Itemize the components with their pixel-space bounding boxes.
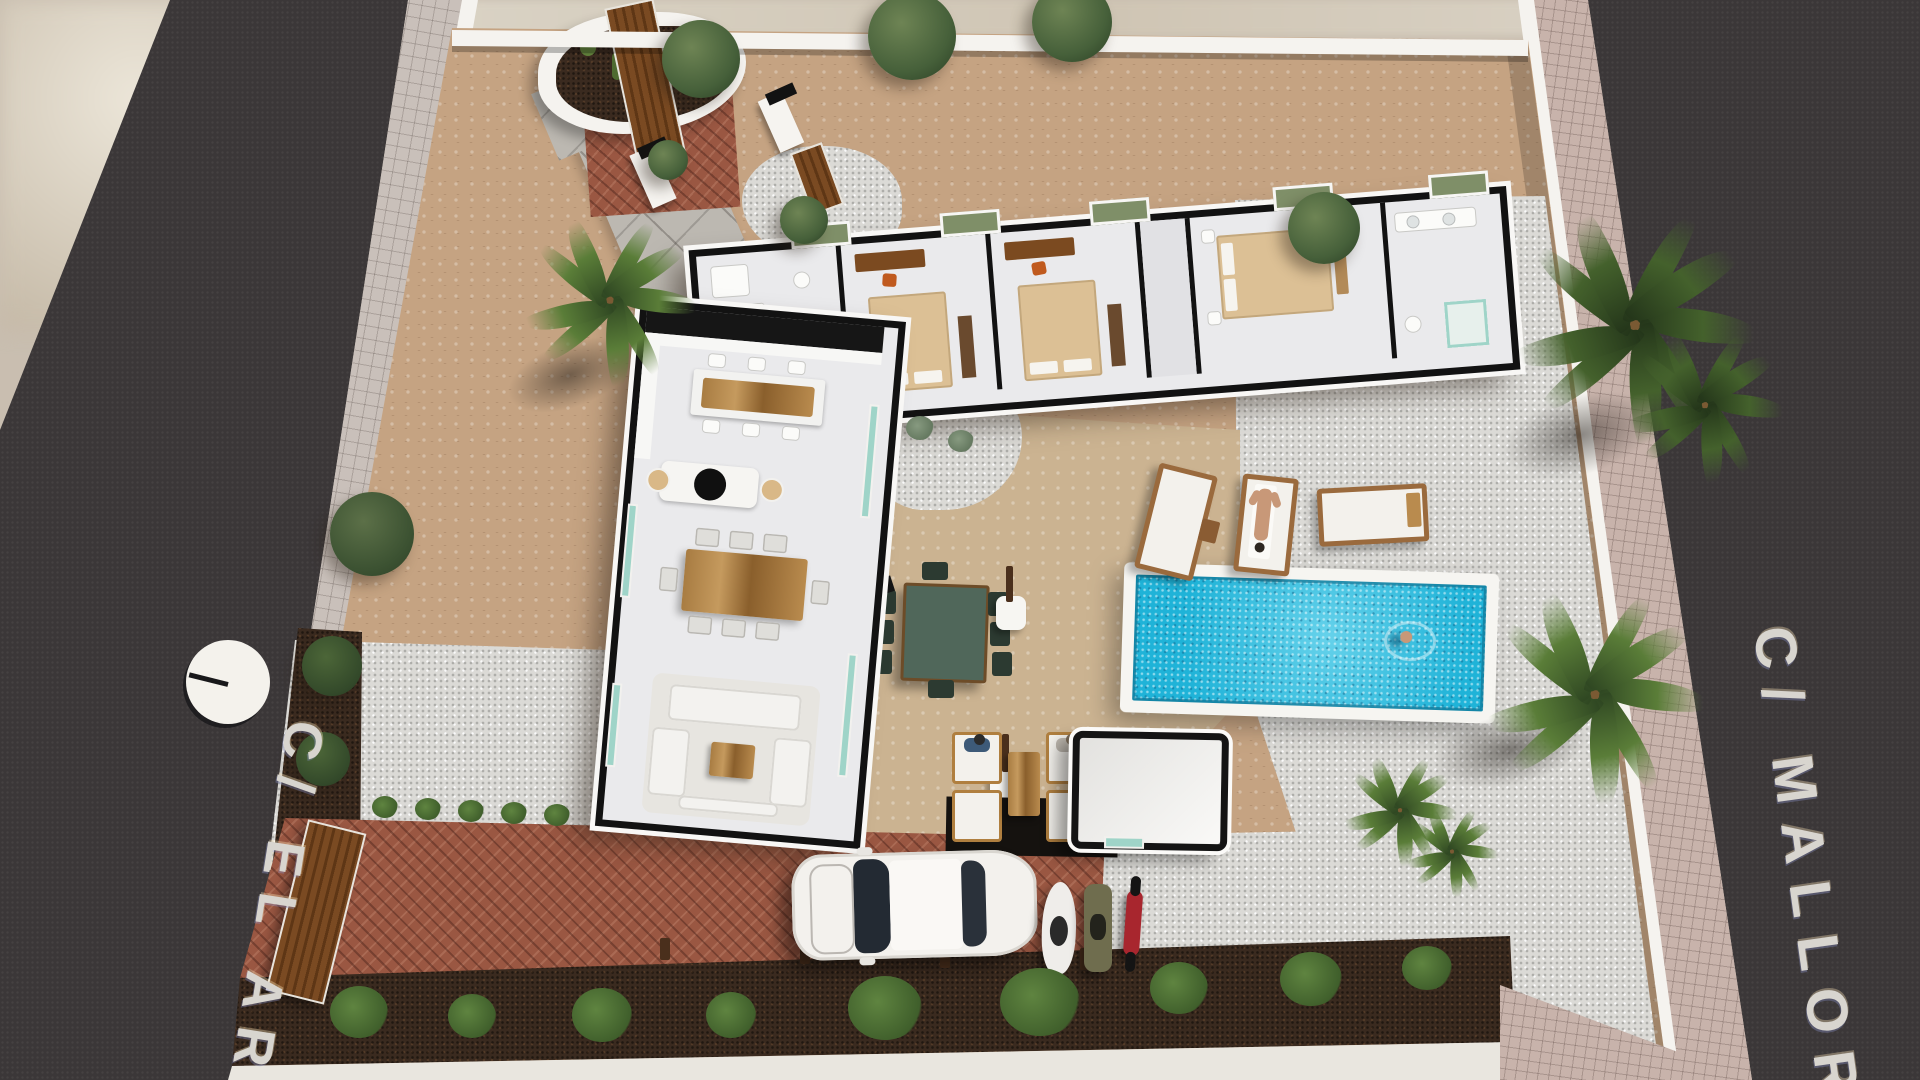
motorbike-wheel-front bbox=[1130, 876, 1141, 897]
sun-lounger-3 bbox=[1317, 483, 1430, 547]
drive-post-1 bbox=[660, 938, 670, 960]
ensuite-shower bbox=[1444, 299, 1489, 348]
indoor-chair-t3 bbox=[762, 533, 787, 553]
indoor-chair-b2 bbox=[721, 618, 746, 638]
clock-disc-icon bbox=[186, 640, 270, 724]
glass-door-east-1 bbox=[862, 406, 878, 516]
hedge-bush-3 bbox=[458, 800, 484, 822]
sun-lounger-2 bbox=[1233, 473, 1299, 576]
border-shrub-7 bbox=[1150, 962, 1208, 1014]
bedroom2-pillow-a bbox=[1029, 361, 1058, 375]
pool-water bbox=[1132, 575, 1487, 712]
white-car bbox=[791, 849, 1039, 961]
indoor-chair-t1 bbox=[695, 528, 720, 548]
ensuite-toilet bbox=[1405, 316, 1421, 332]
car-windshield bbox=[853, 859, 891, 954]
motorbike-wheel-rear bbox=[1125, 952, 1136, 973]
swimming-pool bbox=[1120, 562, 1500, 724]
car-rear-window bbox=[961, 860, 987, 947]
car-hood-seam bbox=[809, 864, 855, 955]
olive-tree-north-1 bbox=[662, 20, 740, 98]
bedroom1-desk bbox=[854, 249, 925, 272]
sofa-west bbox=[647, 726, 691, 797]
master-pillow-a bbox=[1221, 243, 1235, 276]
pool-house bbox=[1071, 731, 1229, 852]
palm-tree-left bbox=[528, 218, 692, 382]
lounger-3-headrest bbox=[1406, 493, 1422, 528]
glass-door-west-1 bbox=[622, 506, 636, 596]
bar-stool-6 bbox=[782, 427, 799, 440]
bar-stool-5 bbox=[743, 423, 760, 436]
dining-chair-bottom bbox=[928, 680, 954, 698]
lounge-coffee-table bbox=[1008, 752, 1040, 816]
wall-partition-5 bbox=[1380, 203, 1397, 359]
hedge-bush-2 bbox=[415, 798, 441, 820]
side-stool-b bbox=[761, 479, 783, 501]
indoor-chair-t2 bbox=[729, 530, 754, 550]
car-mirror-bottom bbox=[859, 957, 875, 965]
tree-left-wall bbox=[330, 492, 414, 576]
bar-stool-2 bbox=[748, 357, 765, 370]
dining-table-indoor bbox=[681, 549, 808, 621]
border-shrub-5 bbox=[848, 976, 922, 1040]
dining-chair-r3 bbox=[992, 652, 1012, 676]
pool-house-roof-shade bbox=[1078, 738, 1222, 844]
master-nightstand-a bbox=[1202, 230, 1215, 243]
bathroom-shower-1 bbox=[711, 265, 749, 298]
border-shrub-8 bbox=[1280, 952, 1342, 1006]
lightwell-strip-5 bbox=[1428, 170, 1490, 199]
bedroom2-wardrobe bbox=[1107, 304, 1126, 367]
indoor-chair-b1 bbox=[687, 615, 712, 635]
border-shrub-9 bbox=[1402, 946, 1452, 990]
indoor-chair-left bbox=[659, 567, 679, 592]
sofa-east bbox=[768, 737, 812, 808]
indoor-chair-right bbox=[810, 580, 830, 605]
olive-tree-courtyard bbox=[780, 196, 828, 244]
aerial-render-canvas: C/ EL AR C/ MALLOR bbox=[0, 0, 1920, 1080]
bedroom1-pillow-b bbox=[914, 370, 943, 384]
border-shrub-3 bbox=[572, 988, 632, 1042]
living-coffee-table bbox=[709, 742, 756, 780]
glass-door-east-2 bbox=[839, 655, 855, 775]
lounge-armchair-sw bbox=[952, 790, 1002, 842]
glass-door-west-2 bbox=[607, 685, 620, 765]
pool-house-window bbox=[1106, 838, 1142, 847]
clock-hand bbox=[189, 672, 229, 687]
palm-tree-gravel-2 bbox=[1408, 808, 1496, 896]
border-shrub-6 bbox=[1000, 968, 1080, 1036]
border-shrub-1 bbox=[330, 986, 388, 1038]
palm-tree-right-small bbox=[1630, 330, 1780, 480]
border-shrub-4 bbox=[706, 992, 756, 1038]
master-nightstand-b bbox=[1208, 312, 1221, 325]
bedroom2-chair bbox=[1031, 261, 1047, 276]
dining-chair-top bbox=[922, 562, 948, 580]
scooter-olive-seat bbox=[1090, 914, 1106, 940]
outdoor-dining-table bbox=[900, 583, 989, 684]
tree-right-gravel bbox=[1288, 192, 1360, 264]
hedge-bush-5 bbox=[544, 804, 570, 826]
hedge-bush-4 bbox=[501, 802, 527, 824]
indoor-chair-b3 bbox=[755, 621, 780, 641]
seated-person-1-head bbox=[974, 734, 985, 745]
bedroom2-desk bbox=[1004, 237, 1075, 260]
master-pillow-b bbox=[1223, 279, 1237, 312]
wall-partition-2 bbox=[985, 234, 1002, 390]
lavender-bush-1 bbox=[906, 416, 934, 440]
bedroom1-chair bbox=[882, 273, 897, 287]
bar-stool-4 bbox=[703, 420, 720, 433]
lavender-bush-2 bbox=[948, 430, 974, 452]
bathroom-toilet-1 bbox=[794, 272, 810, 288]
bedroom2-pillow-b bbox=[1063, 358, 1092, 372]
scooter-olive bbox=[1084, 884, 1112, 972]
olive-tree-entry-small bbox=[648, 140, 688, 180]
bedroom1-wardrobe bbox=[958, 315, 977, 378]
hedge-bush-1 bbox=[372, 796, 398, 818]
lightwell-strip-2 bbox=[939, 209, 1001, 238]
bar-stool-3 bbox=[788, 361, 805, 374]
scooter-white-seat bbox=[1049, 916, 1068, 947]
outdoor-shower-north-post bbox=[1006, 566, 1013, 602]
car-roof bbox=[889, 859, 963, 951]
lightwell-strip-3 bbox=[1089, 197, 1151, 226]
bar-stool-1 bbox=[708, 354, 725, 367]
car-mirror-top bbox=[856, 847, 872, 855]
tree-mulch-left-1 bbox=[302, 636, 362, 696]
motorbike-red-body bbox=[1123, 890, 1144, 957]
palm-tree-bottom-right bbox=[1490, 590, 1700, 800]
border-shrub-2 bbox=[448, 994, 496, 1038]
